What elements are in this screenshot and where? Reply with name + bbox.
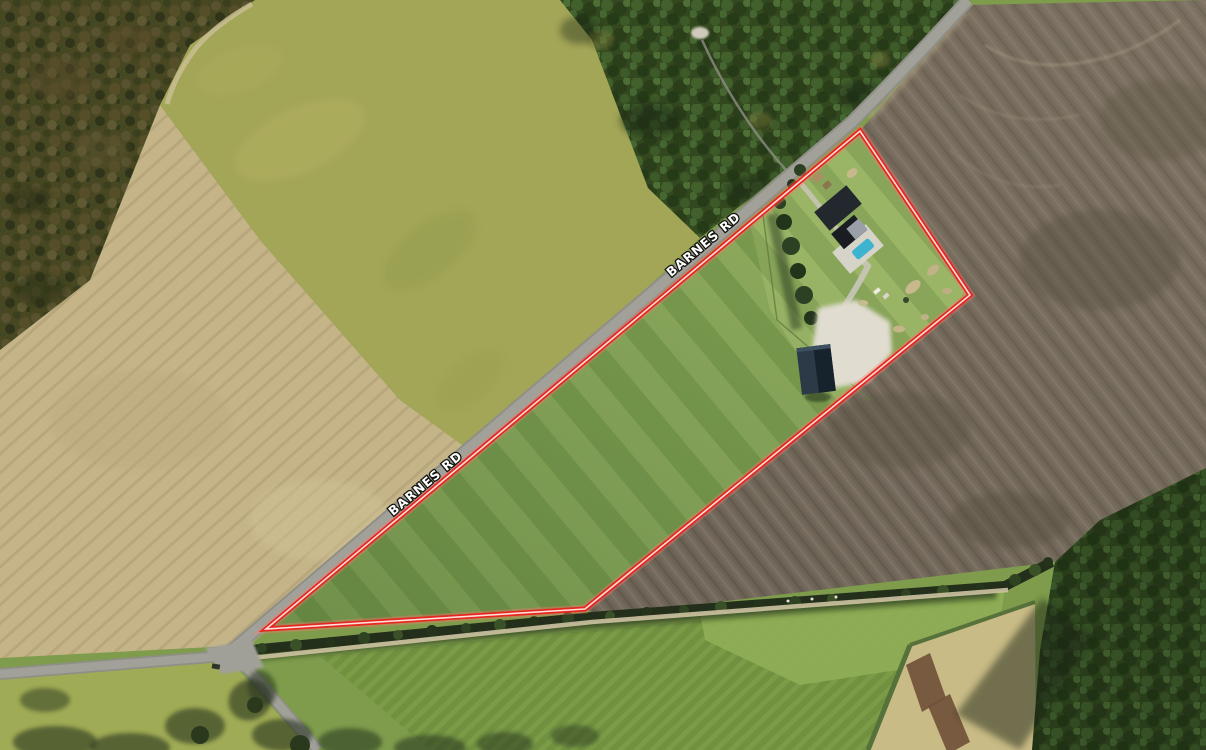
forest-clearing xyxy=(691,27,709,39)
aerial-map-canvas: BARNES RD BARNES RD xyxy=(0,0,1206,750)
aerial-map-view: BARNES RD BARNES RD xyxy=(0,0,1206,750)
